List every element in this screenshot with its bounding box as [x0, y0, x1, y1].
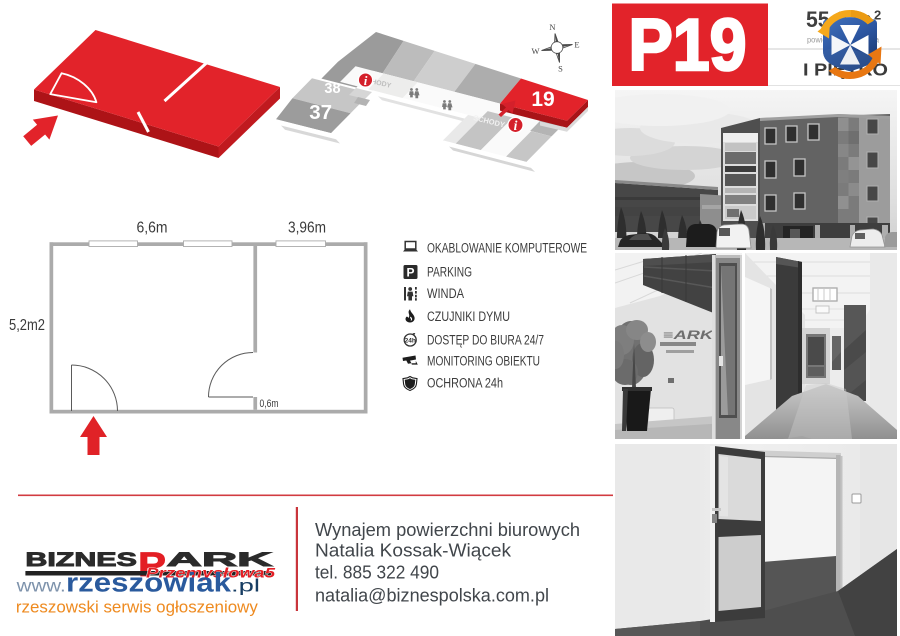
svg-text:CZUJNIKI DYMU: CZUJNIKI DYMU [427, 309, 510, 324]
svg-text:www.: www. [16, 576, 66, 596]
svg-text:38: 38 [324, 81, 340, 97]
svg-text:PARKING: PARKING [427, 265, 472, 280]
svg-text:W: W [531, 46, 539, 56]
svg-text:tel. 885 322 490: tel. 885 322 490 [315, 562, 439, 583]
svg-text:S: S [558, 64, 563, 74]
svg-text:0,6m: 0,6m [260, 398, 279, 410]
svg-text:MONITORING OBIEKTU: MONITORING OBIEKTU [427, 354, 540, 369]
svg-text:DOSTĘP DO BIURA 24/7: DOSTĘP DO BIURA 24/7 [427, 333, 544, 348]
svg-text:Wynajem powierzchni biurowych: Wynajem powierzchni biurowych [315, 519, 580, 540]
svg-text:6,6m: 6,6m [137, 220, 168, 237]
svg-text:E: E [574, 40, 579, 50]
svg-text:i: i [514, 118, 518, 133]
svg-text:natalia@biznespolska.com.pl: natalia@biznespolska.com.pl [315, 585, 549, 606]
svg-text:N: N [549, 22, 555, 32]
svg-text:P: P [406, 266, 414, 280]
svg-text:i: i [364, 73, 368, 88]
svg-text:WINDA: WINDA [427, 286, 464, 301]
svg-text:37: 37 [309, 101, 332, 124]
svg-text:≡ARK: ≡ARK [663, 328, 715, 342]
svg-text:24h: 24h [405, 338, 416, 345]
svg-text:19: 19 [531, 88, 554, 111]
svg-text:OKABLOWANIE KOMPUTEROWE: OKABLOWANIE KOMPUTEROWE [427, 241, 587, 256]
svg-text:P19: P19 [629, 5, 747, 86]
svg-text:rzeszowski serwis ogłoszeniowy: rzeszowski serwis ogłoszeniowy [16, 599, 259, 617]
svg-text:.pl: .pl [231, 576, 260, 596]
svg-text:3,96m: 3,96m [288, 220, 326, 237]
svg-text:rzeszowiak: rzeszowiak [66, 568, 232, 598]
svg-text:5,2m2: 5,2m2 [9, 317, 45, 334]
svg-text:Natalia Kossak-Wiącek: Natalia Kossak-Wiącek [315, 540, 512, 561]
svg-text:OCHRONA 24h: OCHRONA 24h [427, 376, 503, 391]
